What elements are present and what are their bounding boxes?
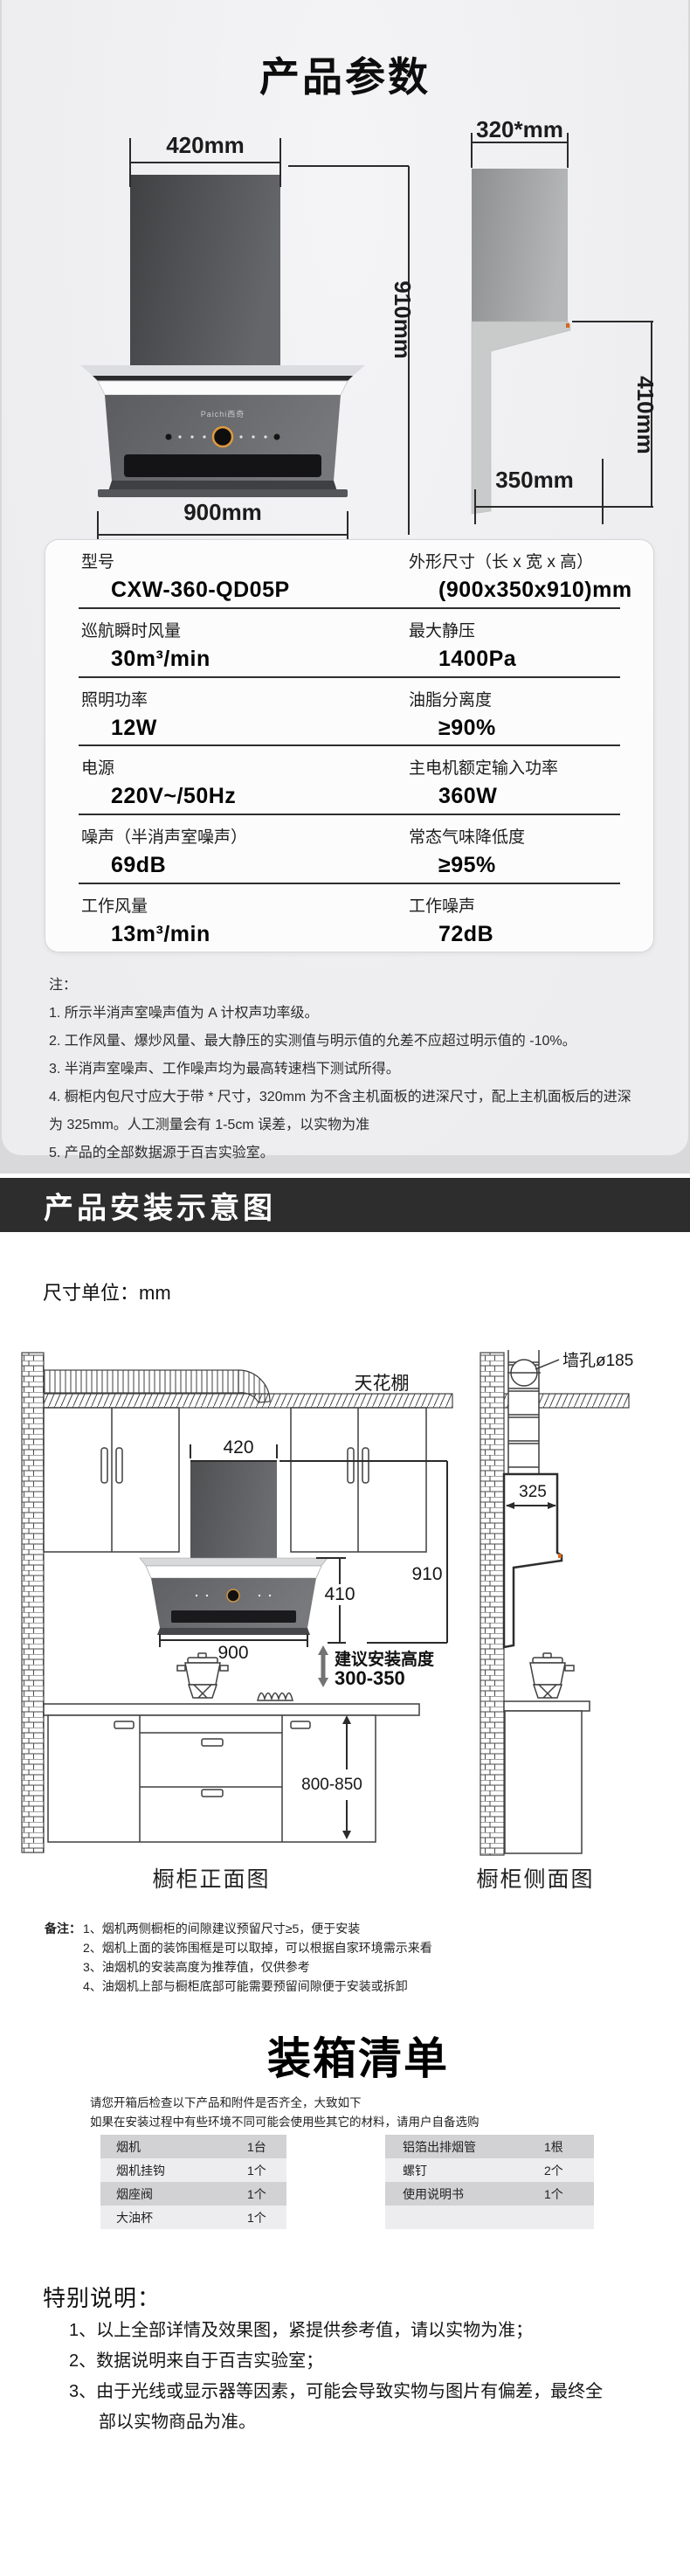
remark-item: 1、烟机两侧橱柜的间隙建议预留尺寸≥5，便于安装 [83, 1919, 432, 1938]
spec-row: 噪声（半消声室噪声） 69dB 常态气味降低度 ≥95% [45, 815, 653, 883]
packing-intro-line: 请您开箱后检查以下产品和附件是否齐全，大致如下 [90, 2094, 480, 2113]
dim-hood-width: 900 [217, 1643, 248, 1663]
suggest-height-label: 建议安装高度 [335, 1649, 435, 1669]
item-qty: 2个 [544, 2162, 563, 2179]
suggest-height-range: 300-350 [335, 1667, 405, 1689]
item-name: 铝箔出排烟管 [385, 2138, 544, 2156]
spec-value: 220V~/50Hz [111, 784, 236, 809]
cabinet-side-view: 墙孔ø185 325 橱柜侧面图 [476, 1350, 633, 1892]
hood-side-photo [472, 169, 570, 514]
spec-row: 电源 220V~/50Hz 主电机额定输入功率 360W [45, 746, 653, 814]
wall-hole-label: 墙孔ø185 [562, 1351, 633, 1370]
item-qty: 1个 [247, 2185, 266, 2203]
spec-value: (900x350x910)mm [438, 578, 632, 603]
spec-value: 1400Pa [438, 647, 516, 672]
pot-side-icon [530, 1653, 574, 1698]
item-name: 烟座阀 [100, 2185, 247, 2203]
spec-value: CXW-360-QD05P [111, 578, 290, 603]
spec-label: 照明功率 [81, 687, 157, 710]
spec-row: 型号 CXW-360-QD05P 外形尺寸（长 x 宽 x 高） (900x35… [45, 540, 653, 607]
control-dial-icon [213, 427, 232, 447]
spec-label: 常态气味降低度 [409, 824, 525, 848]
spec-label: 噪声（半消声室噪声） [81, 824, 247, 848]
spec-label: 型号 [81, 549, 290, 572]
special-item: 1、以上全部详情及效果图，紧提供参考值，请以实物为准； [69, 2316, 611, 2346]
ceiling [44, 1394, 452, 1408]
glass-panel [124, 454, 321, 477]
packing-intro: 请您开箱后检查以下产品和附件是否齐全，大致如下 如果在安装过程中有些环境不同可能… [90, 2094, 480, 2131]
item-name: 螺钉 [385, 2162, 544, 2179]
packing-row: 螺钉 2个 [385, 2158, 594, 2182]
spec-value: 360W [438, 784, 558, 809]
spec-value: ≥95% [438, 853, 525, 878]
spec-label: 外形尺寸（长 x 宽 x 高） [409, 549, 632, 572]
note-item: 5. 产品的全部数据源于百吉实验室。 [49, 1139, 639, 1167]
packing-row: 铝箔出排烟管 1根 [385, 2135, 594, 2158]
packing-row: 烟机挂钩 1个 [100, 2158, 286, 2182]
dim-depth: 325 [519, 1483, 547, 1501]
dim-hood-height: 410 [324, 1584, 355, 1604]
spec-value: 30m³/min [111, 647, 210, 672]
spec-row: 工作风量 13m³/min 工作噪声 72dB [45, 884, 653, 952]
item-name: 烟机 [100, 2138, 247, 2156]
brick-wall-left [22, 1353, 44, 1852]
brick-wall-right [480, 1353, 504, 1855]
spec-value: 13m³/min [111, 922, 210, 947]
packing-row: 使用说明书 1个 [385, 2182, 594, 2206]
spec-label: 工作噪声 [409, 893, 493, 917]
remark-item: 2、烟机上面的装饰围框是可以取掉，可以根据自家环境需示来看 [83, 1938, 432, 1957]
dim-910mm: 910mm [390, 280, 416, 359]
packing-row: 烟座阀 1个 [100, 2182, 286, 2206]
orange-marker [566, 323, 569, 328]
spec-label: 主电机额定输入功率 [409, 755, 558, 779]
dim-chimney-width: 420 [223, 1437, 253, 1458]
spec-row: 照明功率 12W 油脂分离度 ≥90% [45, 678, 653, 745]
packing-intro-line: 如果在安装过程中有些环境不同可能会使用些其它的材料，请用户自备选购 [90, 2113, 480, 2132]
special-item: 3、由于光线或显示器等因素，可能会导致实物与图片有偏差，最终全部以实物商品为准。 [69, 2377, 611, 2438]
notes-label: 注： [49, 972, 639, 1000]
packing-row: 大油杯 1个 [100, 2206, 286, 2229]
dim-410mm: 410mm [632, 376, 659, 454]
front-view-caption: 橱柜正面图 [152, 1867, 270, 1892]
note-item: 3. 半消声室噪声、工作噪声均为最高转速档下测试所得。 [49, 1056, 639, 1084]
spec-value: 72dB [438, 922, 493, 947]
product-dimension-figure: Paichi西奇 420mm 910mm 900mm [0, 114, 690, 568]
spec-label: 最大静压 [409, 618, 516, 641]
dim-900mm: 900mm [183, 499, 262, 525]
product-detail-page: 产品参数 Paichi西奇 [0, 0, 690, 2576]
orange-marker-small [558, 1554, 562, 1558]
remark-item: 4、油烟机上部与橱柜底部可能需要预留间隙便于安装或拆卸 [83, 1977, 432, 1996]
packing-title: 装箱清单 [0, 2024, 690, 2087]
note-item: 4. 橱柜内包尺寸应大于带 * 尺寸，320mm 为不含主机面板的进深尺寸，配上… [49, 1084, 639, 1139]
packing-table-right: 铝箔出排烟管 1根 螺钉 2个 使用说明书 1个 [385, 2135, 594, 2229]
cabinet-front-view: 天花棚 [22, 1353, 452, 1892]
side-counter-cabinet [504, 1701, 590, 1853]
note-item: 2. 工作风量、爆炒风量、最大静压的实测值与明示值的允差不应超过明示值的 -10… [49, 1028, 639, 1056]
page-title: 产品参数 [0, 45, 690, 103]
ceiling-label: 天花棚 [355, 1374, 410, 1394]
installation-diagram: 天花棚 [0, 1350, 690, 1901]
remarks-label: 备注： [45, 1919, 83, 1996]
spec-label: 巡航瞬时风量 [81, 618, 210, 641]
chimney-side [472, 169, 568, 322]
dim-counter-height: 800-850 [301, 1776, 362, 1794]
side-view-caption: 橱柜侧面图 [476, 1867, 594, 1892]
spec-value: 69dB [111, 853, 247, 878]
packing-table-left: 烟机 1台 烟机挂钩 1个 烟座阀 1个 大油杯 1个 [100, 2135, 286, 2229]
exhaust-duct [44, 1370, 238, 1393]
dim-320mm: 320*mm [476, 116, 563, 142]
spec-value: 12W [111, 716, 157, 741]
special-list: 1、以上全部详情及效果图，紧提供参考值，请以实物为准； 2、数据说明来自于百吉实… [69, 2316, 611, 2438]
packing-row: 烟机 1台 [100, 2135, 286, 2158]
dim-total-height: 910 [411, 1564, 442, 1584]
section-banner-title: 产品安装示意图 [44, 1184, 276, 1227]
notes-block: 注： 1. 所示半消声室噪声值为 A 计权声功率级。 2. 工作风量、爆炒风量、… [49, 972, 639, 1167]
packing-row [385, 2206, 594, 2229]
special-heading: 特别说明： [43, 2281, 161, 2313]
dim-350mm: 350mm [495, 467, 574, 493]
dim-420mm: 420mm [166, 132, 245, 158]
hood-base [98, 489, 348, 497]
remarks-block: 备注： 1、烟机两侧橱柜的间隙建议预留尺寸≥5，便于安装 2、烟机上面的装饰围框… [45, 1919, 656, 1996]
item-qty: 1根 [544, 2138, 563, 2156]
spec-label: 油脂分离度 [409, 687, 496, 710]
spec-row: 巡航瞬时风量 30m³/min 最大静压 1400Pa [45, 609, 653, 676]
item-qty: 1个 [544, 2185, 563, 2203]
base-cabinets [44, 1704, 419, 1842]
note-item: 1. 所示半消声室噪声值为 A 计权声功率级。 [49, 1000, 639, 1028]
spec-value: ≥90% [438, 716, 496, 741]
hood-front-photo: Paichi西奇 [80, 175, 365, 497]
light-strip [98, 381, 348, 395]
spec-label: 电源 [81, 755, 236, 779]
item-qty: 1台 [247, 2138, 266, 2156]
suggest-height-arrow-icon [318, 1645, 328, 1687]
brand-logo: Paichi西奇 [201, 409, 245, 419]
spec-label: 工作风量 [81, 893, 210, 917]
item-name: 烟机挂钩 [100, 2162, 247, 2179]
unit-label: 尺寸单位：mm [43, 1278, 171, 1305]
item-qty: 1个 [247, 2162, 266, 2179]
remarks-list: 1、烟机两侧橱柜的间隙建议预留尺寸≥5，便于安装 2、烟机上面的装饰围框是可以取… [83, 1919, 432, 1996]
item-qty: 1个 [247, 2209, 266, 2226]
item-name: 使用说明书 [385, 2185, 544, 2203]
remark-item: 3、油烟机的安装高度为推荐值，仅供参考 [83, 1957, 432, 1977]
chimney-front [130, 175, 280, 367]
burner-icon [258, 1693, 293, 1700]
section-banner: 产品安装示意图 [0, 1178, 690, 1232]
spec-table: 型号 CXW-360-QD05P 外形尺寸（长 x 宽 x 高） (900x35… [45, 539, 654, 952]
canopy-top-trim [80, 365, 365, 376]
item-name: 大油杯 [100, 2209, 247, 2226]
special-item: 2、数据说明来自于百吉实验室； [69, 2346, 611, 2377]
